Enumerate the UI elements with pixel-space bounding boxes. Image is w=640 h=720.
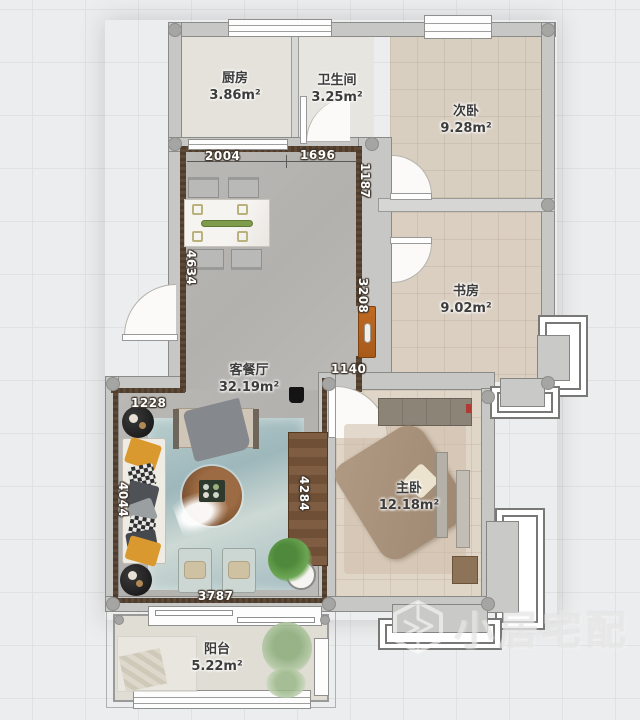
wall-joint [168, 23, 182, 37]
side-table[interactable] [122, 406, 154, 438]
room-name: 厨房 [209, 70, 260, 87]
master-door[interactable] [328, 384, 336, 438]
armchair[interactable] [178, 548, 212, 593]
side-table[interactable] [120, 564, 152, 596]
armchair-pillow [184, 561, 206, 579]
table-runner [201, 220, 253, 227]
coffee-table[interactable] [182, 466, 242, 526]
floorplan-canvas: 2004 1696 1187 4634 3208 1140 1228 4044 … [0, 0, 640, 720]
place-setting [237, 204, 248, 215]
dim-label: 4634 [184, 250, 198, 285]
room-area: 3.86m² [209, 87, 260, 104]
room-label-master: 主卧 12.18m² [379, 480, 439, 514]
room-label-study: 书房 9.02m² [440, 283, 491, 317]
room-area: 3.25m² [311, 89, 362, 106]
dining-chair[interactable] [231, 249, 262, 270]
entry-door[interactable] [358, 306, 376, 358]
bedside-bench[interactable] [456, 470, 470, 548]
wall-joint [541, 198, 555, 212]
balcony-window-right[interactable] [314, 638, 329, 696]
room-name: 次卧 [440, 103, 491, 120]
room-area: 9.02m² [440, 300, 491, 317]
floor-device [289, 387, 304, 403]
room-area: 9.28m² [440, 120, 491, 137]
room-area: 32.19m² [219, 379, 279, 396]
bedroom2-door[interactable] [390, 193, 432, 200]
dim-label: 1140 [331, 362, 366, 376]
wardrobe[interactable] [378, 398, 472, 426]
dim-label: 1187 [358, 163, 372, 198]
balcony-plant[interactable] [262, 622, 312, 674]
wall-joint [481, 390, 495, 404]
plant-foliage [268, 538, 312, 582]
bedroom2-window[interactable] [424, 15, 492, 39]
wall-joint [114, 615, 124, 625]
wall-joint [541, 376, 555, 390]
dim-tick [286, 155, 287, 168]
room-area: 12.18m² [379, 497, 439, 514]
room-area: 5.22m² [191, 658, 242, 675]
nightstand[interactable] [452, 556, 478, 584]
dining-table[interactable] [184, 199, 270, 247]
wall-top [168, 22, 556, 37]
dim-label: 3787 [198, 589, 233, 603]
wall-bed2-study [378, 198, 555, 212]
room-name: 书房 [440, 283, 491, 300]
room-name: 客餐厅 [219, 362, 279, 379]
room-label-bedroom2: 次卧 9.28m² [440, 103, 491, 137]
bench-arm [173, 409, 179, 449]
dim-label: 1228 [131, 396, 166, 410]
wall-joint [322, 597, 336, 611]
cup [136, 580, 143, 587]
cup [128, 571, 137, 580]
place-setting [192, 231, 203, 242]
wall-joint [106, 377, 120, 391]
dim-label: 2004 [205, 149, 240, 163]
dining-chair[interactable] [228, 177, 259, 198]
room-label-balcony: 阳台 5.22m² [191, 641, 242, 675]
place-setting [192, 204, 203, 215]
balcony-plant[interactable] [266, 668, 306, 698]
wall-joint [481, 597, 495, 611]
wall-kitchen-bath [291, 33, 299, 139]
armchair-pillow [228, 561, 250, 579]
study-door[interactable] [390, 237, 432, 244]
armchair[interactable] [222, 548, 256, 593]
room-name: 主卧 [379, 480, 439, 497]
room-label-bathroom: 卫生间 3.25m² [311, 72, 362, 106]
kitchen-window[interactable] [228, 19, 332, 37]
place-setting [237, 231, 248, 242]
room-label-living: 客餐厅 32.19m² [219, 362, 279, 396]
cup [129, 414, 138, 423]
bathroom-door[interactable] [300, 96, 307, 144]
study-bay-panel-bottom [500, 378, 545, 407]
master-bay-panel-bottom [392, 604, 488, 633]
wall-joint [320, 615, 330, 625]
wall-joint [365, 137, 379, 151]
wall-joint [322, 377, 336, 391]
tea-tray [199, 480, 225, 502]
dining-chair[interactable] [188, 177, 219, 198]
wall-joint [168, 137, 182, 151]
dim-label: 3208 [356, 278, 370, 313]
dim-label: 4284 [297, 476, 311, 511]
bench-arm [253, 409, 259, 449]
trim-sofa-top [111, 388, 185, 393]
entry-door-handle [364, 323, 371, 343]
wall-joint [541, 23, 555, 37]
wardrobe-alert-dot [466, 404, 471, 413]
dim-label: 1696 [300, 148, 335, 162]
room-name: 阳台 [191, 641, 242, 658]
dim-label: 4044 [116, 482, 130, 517]
room-label-kitchen: 厨房 3.86m² [209, 70, 260, 104]
living-left-door[interactable] [122, 334, 178, 341]
wall-joint [106, 597, 120, 611]
study-bay-panel-right [537, 335, 570, 381]
cup [139, 422, 146, 429]
room-name: 卫生间 [311, 72, 362, 89]
